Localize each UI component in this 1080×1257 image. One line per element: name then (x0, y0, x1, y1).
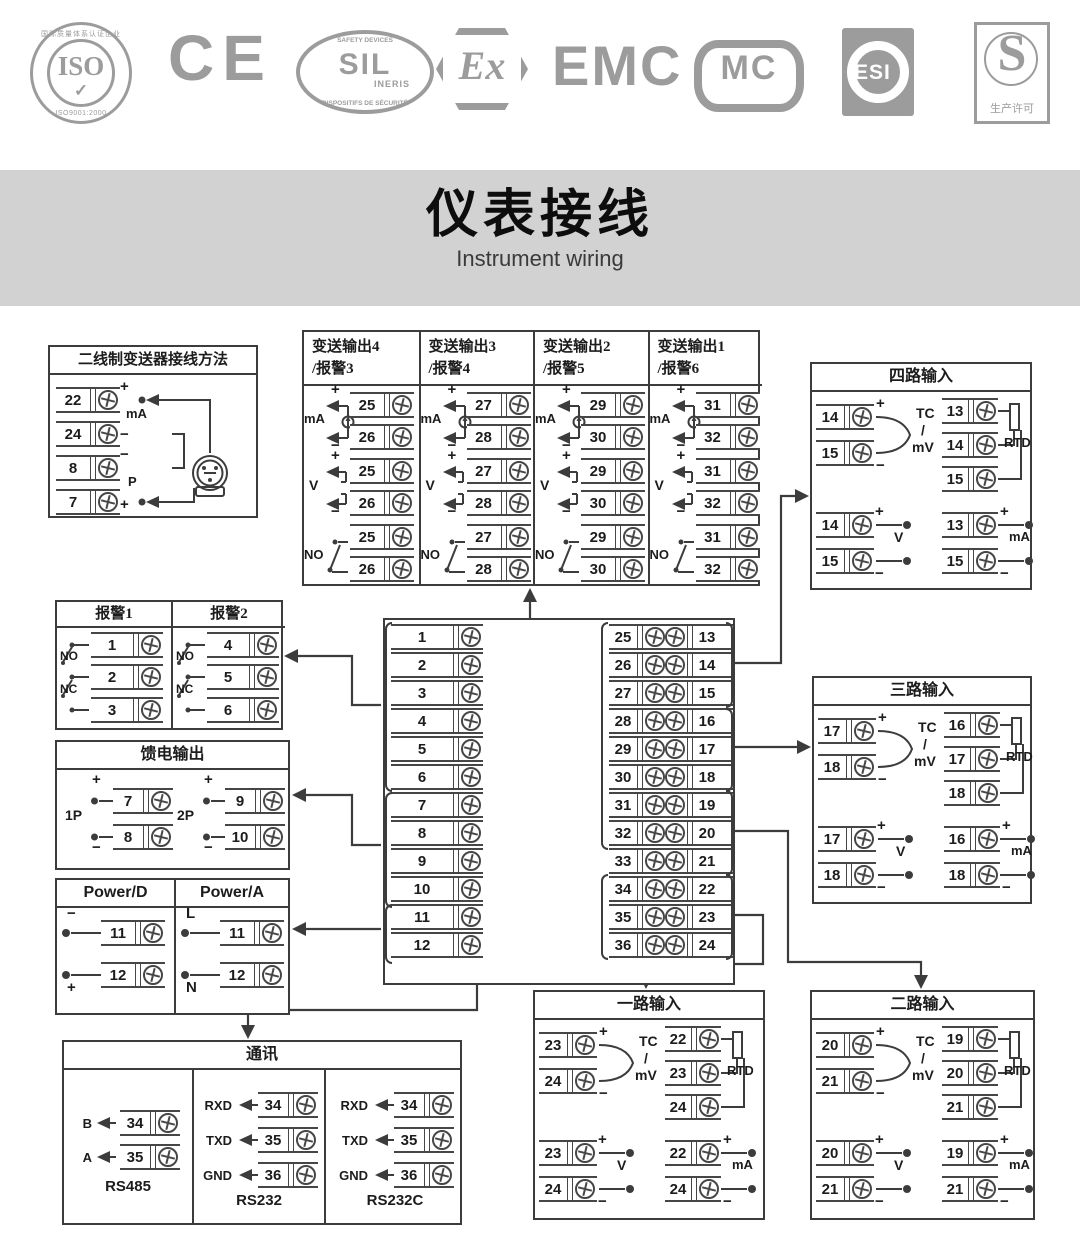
wire-label: NC (60, 683, 77, 695)
polarity-sign: + (92, 772, 101, 787)
terminal-separator (453, 626, 459, 648)
signal-label: GND (334, 1169, 368, 1182)
terminal-separator (567, 1034, 573, 1056)
terminal-separator (501, 426, 507, 448)
wire-label: TC (916, 406, 935, 420)
terminal-separator (970, 828, 976, 850)
terminal-separator (844, 550, 850, 572)
terminal-number: 27 (469, 530, 499, 545)
terminal-separator (133, 666, 139, 688)
screw-terminal-icon (262, 923, 282, 943)
terminal: 8 (113, 824, 173, 850)
terminal-separator (384, 558, 390, 580)
terminal-number: 8 (58, 461, 88, 476)
terminal-separator (730, 558, 736, 580)
wire-label: / (921, 423, 925, 437)
screw-terminal-icon (738, 395, 758, 415)
group-bracket (385, 904, 392, 964)
terminal: 15 (816, 440, 874, 466)
screw-terminal-icon (98, 390, 118, 410)
screw-terminal-icon (151, 791, 171, 811)
terminal-separator (615, 394, 621, 416)
terminal: 22 (56, 387, 120, 413)
screw-terminal-icon (141, 635, 161, 655)
terminal: 31 (696, 458, 760, 484)
column-header: 变送输出2/报警5 (535, 332, 648, 386)
terminal-number: 5 (393, 742, 451, 757)
terminal: 21 (816, 1068, 874, 1094)
terminal: 4 (391, 708, 483, 734)
terminal-number: 12 (103, 968, 133, 983)
box-body: 222487+mA−−P+ (50, 375, 256, 516)
terminal-number: 26 (352, 562, 382, 577)
signal-label: GND (198, 1169, 232, 1182)
screw-terminal-icon (699, 1029, 719, 1049)
ma-output-group: mA+−2930 (535, 390, 649, 454)
screw-terminal-icon (976, 515, 996, 535)
terminal: 24 (56, 421, 120, 447)
column-title-line2: /报警6 (658, 359, 763, 381)
screw-terminal-icon (699, 1179, 719, 1199)
terminal-number: 7 (115, 794, 141, 809)
terminal-separator (453, 934, 459, 956)
column-title-line1: 变送输出3 (429, 337, 534, 359)
terminal-separator (846, 828, 852, 850)
alarm-column: 报警2456NONC (171, 602, 285, 728)
alarm-switch-icon (59, 634, 89, 724)
box-title: 四路输入 (812, 364, 1030, 392)
alarm-relay-box: 报警1123NONC报警2456NONC (55, 600, 283, 730)
terminal: 28 (467, 490, 531, 516)
screw-terminal-icon (461, 767, 481, 787)
terminal-number: 26 (352, 496, 382, 511)
screw-terminal-icon (645, 683, 665, 703)
terminal: 17 (818, 718, 876, 744)
terminal-separator (143, 790, 149, 812)
terminal: 15 (942, 548, 998, 574)
switch-no-icon (553, 528, 579, 580)
polarity-sign: L (186, 906, 195, 921)
terminal: 29 (581, 458, 645, 484)
terminal-number: 28 (469, 562, 499, 577)
terminal-separator (501, 394, 507, 416)
box-title: 三路输入 (814, 678, 1030, 706)
terminal-separator (453, 822, 459, 844)
terminal-number: 24 (695, 938, 719, 953)
terminal-separator (968, 1028, 974, 1050)
screw-terminal-icon (738, 493, 758, 513)
screw-terminal-icon (645, 627, 665, 647)
screw-terminal-icon (143, 965, 163, 985)
terminal-separator (637, 738, 643, 760)
terminal-number: 6 (393, 770, 451, 785)
terminal-separator (90, 491, 96, 513)
terminal-separator (567, 1178, 573, 1200)
terminal: 2 (391, 652, 483, 678)
screw-terminal-icon (665, 851, 685, 871)
terminal: 34 (258, 1092, 318, 1118)
terminal-separator (288, 1164, 294, 1186)
terminal-separator (615, 460, 621, 482)
terminal: 18 (818, 862, 876, 888)
terminal-number: 21 (818, 1182, 842, 1197)
screw-terminal-icon (665, 879, 685, 899)
screw-terminal-icon (976, 435, 996, 455)
screw-terminal-icon (461, 739, 481, 759)
wire-label: NO (60, 650, 78, 662)
screw-terminal-icon (141, 667, 161, 687)
terminal: 4 (207, 632, 279, 658)
terminal: 14 (942, 432, 998, 458)
terminal-separator (150, 1146, 156, 1168)
terminal-number: 12 (393, 938, 451, 953)
screw-terminal-icon (158, 1147, 178, 1167)
screw-terminal-icon (392, 461, 412, 481)
terminal: 18 (818, 754, 876, 780)
terminal-number: 28 (469, 430, 499, 445)
terminal-separator (424, 1094, 430, 1116)
terminal: 11 (220, 920, 284, 946)
terminal-separator (687, 626, 693, 648)
terminal-separator (453, 906, 459, 928)
terminal-separator (844, 514, 850, 536)
terminal-number: 20 (818, 1146, 842, 1161)
screw-terminal-icon (158, 1113, 178, 1133)
terminal-separator (249, 634, 255, 656)
terminal-number: 15 (818, 554, 842, 569)
box-title: 二路输入 (812, 992, 1033, 1020)
screw-terminal-icon (509, 527, 529, 547)
terminal-separator (637, 654, 643, 676)
screw-terminal-icon (665, 683, 685, 703)
terminal-separator (453, 654, 459, 676)
terminal-pair-row: 2816 (609, 708, 733, 734)
terminal-number: 11 (393, 910, 451, 925)
terminal-number: 29 (611, 742, 635, 757)
terminal-pair-row: 2513 (609, 624, 733, 650)
column-header: 变送输出3/报警4 (421, 332, 534, 386)
polarity-sign: − (875, 566, 884, 581)
screw-terminal-icon (432, 1165, 452, 1185)
switch-no-icon (668, 528, 694, 580)
arrow-left-icon (236, 1133, 258, 1147)
terminal-number: 23 (695, 910, 719, 925)
screw-terminal-icon (461, 795, 481, 815)
terminal-pair-row: 3624 (609, 932, 733, 958)
screw-terminal-icon (623, 395, 643, 415)
screw-terminal-icon (738, 559, 758, 579)
terminal-separator (968, 1142, 974, 1164)
terminal-number: 23 (667, 1066, 689, 1081)
power-wires-icon (180, 923, 220, 985)
alarm-column: 报警1123NONC (57, 602, 171, 728)
screw-terminal-icon (976, 551, 996, 571)
terminal-number: 3 (393, 686, 451, 701)
terminal-number: 32 (698, 496, 728, 511)
screw-terminal-icon (665, 711, 685, 731)
terminal-separator (968, 1096, 974, 1118)
terminal-number: 29 (583, 398, 613, 413)
wire-label: NO (304, 548, 324, 561)
polarity-sign: − (1002, 880, 1011, 895)
polarity-sign: + (875, 1132, 884, 1147)
terminal: 14 (816, 404, 874, 430)
polarity-sign: + (120, 497, 129, 512)
terminal-number: 28 (469, 496, 499, 511)
wire-label: mA (1011, 844, 1032, 857)
terminal-number: 15 (695, 686, 719, 701)
terminal-number: 26 (352, 430, 382, 445)
terminal-number: 16 (946, 718, 968, 733)
switch-no-icon (439, 528, 465, 580)
terminal-separator (501, 526, 507, 548)
relay-no-group: NO2728 (421, 522, 535, 586)
terminal-separator (687, 794, 693, 816)
screw-terminal-icon (665, 739, 685, 759)
box-body: Power/D−+1112Power/ALN1112 (57, 880, 288, 1013)
screw-terminal-icon (978, 783, 998, 803)
rear-terminal-block: 1251322614327154281652917630187311983220… (383, 618, 735, 985)
terminal-separator (254, 922, 260, 944)
voltage-loop-icon (322, 462, 348, 514)
terminal: 29 (581, 524, 645, 550)
screw-terminal-icon (665, 823, 685, 843)
terminal-number: 18 (946, 868, 968, 883)
group-bracket (726, 874, 733, 960)
terminal-number: 23 (541, 1038, 565, 1053)
terminal-separator (687, 738, 693, 760)
screw-terminal-icon (978, 715, 998, 735)
box-title: 馈电输出 (57, 742, 288, 770)
terminal-separator (691, 1028, 697, 1050)
terminal-number: 30 (611, 770, 635, 785)
screw-terminal-icon (98, 492, 118, 512)
current-loop-icon (439, 396, 465, 448)
terminal-number: 30 (583, 562, 613, 577)
screw-terminal-icon (665, 935, 685, 955)
screw-terminal-icon (738, 427, 758, 447)
screw-terminal-icon (665, 767, 685, 787)
screw-terminal-icon (392, 395, 412, 415)
terminal-number: 17 (820, 832, 844, 847)
screw-terminal-icon (645, 879, 665, 899)
terminal-number: 21 (695, 854, 719, 869)
terminal-separator (453, 766, 459, 788)
terminal-separator (968, 400, 974, 422)
terminal-number: 16 (946, 832, 968, 847)
terminal-number: 32 (611, 826, 635, 841)
screw-terminal-icon (699, 1143, 719, 1163)
terminal: 21 (942, 1176, 998, 1202)
screw-terminal-icon (645, 907, 665, 927)
polarity-sign: + (877, 818, 886, 833)
wire-label: V (894, 530, 903, 544)
terminal-pair-row: 3018 (609, 764, 733, 790)
screw-terminal-icon (645, 767, 665, 787)
screw-terminal-icon (296, 1165, 316, 1185)
wire-label: TC (916, 1034, 935, 1048)
terminal-number: 20 (695, 826, 719, 841)
terminal-separator (691, 1142, 697, 1164)
terminal-number: 24 (667, 1182, 689, 1197)
terminal-separator (453, 850, 459, 872)
voltage-loop-icon (668, 462, 694, 514)
terminal: 1 (91, 632, 163, 658)
screw-terminal-icon (392, 427, 412, 447)
terminal-number: 18 (820, 868, 844, 883)
terminal-separator (637, 766, 643, 788)
terminal-number: 13 (695, 630, 719, 645)
terminal-number: 8 (393, 826, 451, 841)
terminal-separator (453, 682, 459, 704)
terminal-number: 25 (352, 464, 382, 479)
terminal-number: 36 (260, 1168, 286, 1183)
transmitter-wiring-icon (138, 387, 253, 519)
polarity-sign: + (1000, 504, 1009, 519)
terminal-separator (968, 514, 974, 536)
terminal: 6 (207, 697, 279, 723)
wire-label: TC (639, 1034, 658, 1048)
terminal-number: 4 (209, 638, 247, 653)
terminal-pair-row: 3119 (609, 792, 733, 818)
group-bracket (726, 622, 733, 708)
terminal-separator (567, 1070, 573, 1092)
terminal: 29 (581, 392, 645, 418)
thermocouple-junction-icon (876, 409, 912, 461)
terminal-number: 33 (611, 854, 635, 869)
screw-terminal-icon (738, 461, 758, 481)
feed-group-label: 2P (177, 808, 194, 822)
terminal: 27 (467, 458, 531, 484)
polarity-sign: + (448, 448, 457, 463)
screw-terminal-icon (852, 551, 872, 571)
polarity-sign: − (875, 1194, 884, 1209)
feed-power-output-box: 馈电输出 1P+−782P+−910 (55, 740, 290, 870)
group-bracket (726, 790, 733, 876)
two-channel-input-box: 二路输入 2021+−TC/mV192021RTD2021+−V1921+−mA (810, 990, 1035, 1220)
one-channel-input-box: 一路输入 2324+−TC/mV222324RTD2324+−V2224+−mA (533, 990, 765, 1220)
terminal-number: 10 (393, 882, 451, 897)
terminal: 12 (391, 932, 483, 958)
voltage-output-group: V+−3132 (650, 456, 764, 520)
polarity-sign: + (331, 382, 340, 397)
terminal-separator (249, 699, 255, 721)
terminal: 16 (944, 712, 1000, 738)
wire-label: NO (650, 548, 670, 561)
feed-wires-icon (203, 786, 225, 848)
page: 国际质量体系认证企业 ISO ✓ ISO9001:2000 CE SAFETY … (0, 0, 1080, 1257)
terminal-pair-row: 3422 (609, 876, 733, 902)
screw-terminal-icon (263, 791, 283, 811)
screw-terminal-icon (575, 1071, 595, 1091)
terminal: 10 (391, 876, 483, 902)
terminal: 12 (101, 962, 165, 988)
power-supply-box: Power/D−+1112Power/ALN1112 (55, 878, 290, 1015)
wire-label: NC (176, 683, 193, 695)
terminal-number: 19 (695, 798, 719, 813)
box-body: 1251322614327154281652917630187311983220… (385, 620, 733, 983)
screw-terminal-icon (976, 469, 996, 489)
terminal: 27 (467, 392, 531, 418)
terminal: 18 (944, 780, 1000, 806)
terminal-number: 17 (946, 752, 968, 767)
terminal: 31 (696, 524, 760, 550)
terminal-number: 34 (122, 1116, 148, 1131)
terminal-separator (453, 878, 459, 900)
terminal-number: 14 (944, 438, 966, 453)
screw-terminal-icon (976, 401, 996, 421)
terminal: 12 (220, 962, 284, 988)
relay-no-group: NO2930 (535, 522, 649, 586)
wire-label: RTD (1006, 750, 1033, 763)
terminal: 24 (539, 1176, 597, 1202)
terminal: 9 (225, 788, 285, 814)
terminal-separator (844, 1034, 850, 1056)
ma-output-group: mA+−2728 (421, 390, 535, 454)
terminal: 7 (391, 792, 483, 818)
terminal-number: 2 (393, 658, 451, 673)
screw-terminal-icon (461, 823, 481, 843)
screw-terminal-icon (461, 907, 481, 927)
current-loop-icon (668, 396, 694, 448)
screw-terminal-icon (98, 424, 118, 444)
screw-terminal-icon (509, 427, 529, 447)
box-body: 1415+−TC/mV131415RTD1415+−V1315+−mA (812, 392, 1030, 588)
wire-label: RTD (1004, 1064, 1031, 1077)
terminal: 1 (391, 624, 483, 650)
screw-terminal-icon (392, 527, 412, 547)
terminal-separator (143, 826, 149, 848)
terminal: 21 (816, 1176, 874, 1202)
terminal-number: 9 (227, 794, 253, 809)
terminal-number: 17 (820, 724, 844, 739)
terminal-number: 10 (227, 830, 253, 845)
terminal-number: 36 (611, 938, 635, 953)
screw-terminal-icon (575, 1143, 595, 1163)
screw-terminal-icon (645, 739, 665, 759)
screw-terminal-icon (623, 493, 643, 513)
terminal-separator (150, 1112, 156, 1134)
terminal-separator (970, 782, 976, 804)
screw-terminal-icon (575, 1035, 595, 1055)
terminal-separator (687, 878, 693, 900)
wire-label: mA (732, 1158, 753, 1171)
terminal-separator (691, 1062, 697, 1084)
terminal-number: 24 (667, 1100, 689, 1115)
wire-label: V (655, 478, 664, 492)
comm-section: B34A35RS485 (64, 1070, 192, 1225)
wire-label: / (923, 737, 927, 751)
terminal: 19 (942, 1140, 998, 1166)
terminal-number: 22 (695, 882, 719, 897)
group-bracket (726, 708, 733, 792)
terminal-number: 21 (944, 1100, 966, 1115)
polarity-sign: + (1000, 1132, 1009, 1147)
screw-terminal-icon (854, 757, 874, 777)
polarity-sign: + (120, 379, 129, 394)
power-wires-icon (61, 923, 101, 985)
feed-group-label: 1P (65, 808, 82, 822)
screw-terminal-icon (509, 461, 529, 481)
terminal-separator (453, 738, 459, 760)
terminal-pair-row: 3220 (609, 820, 733, 846)
screw-terminal-icon (854, 829, 874, 849)
screw-terminal-icon (461, 879, 481, 899)
terminal-separator (637, 682, 643, 704)
group-bracket (385, 622, 392, 792)
wire-label: / (644, 1051, 648, 1065)
polarity-sign: + (562, 382, 571, 397)
